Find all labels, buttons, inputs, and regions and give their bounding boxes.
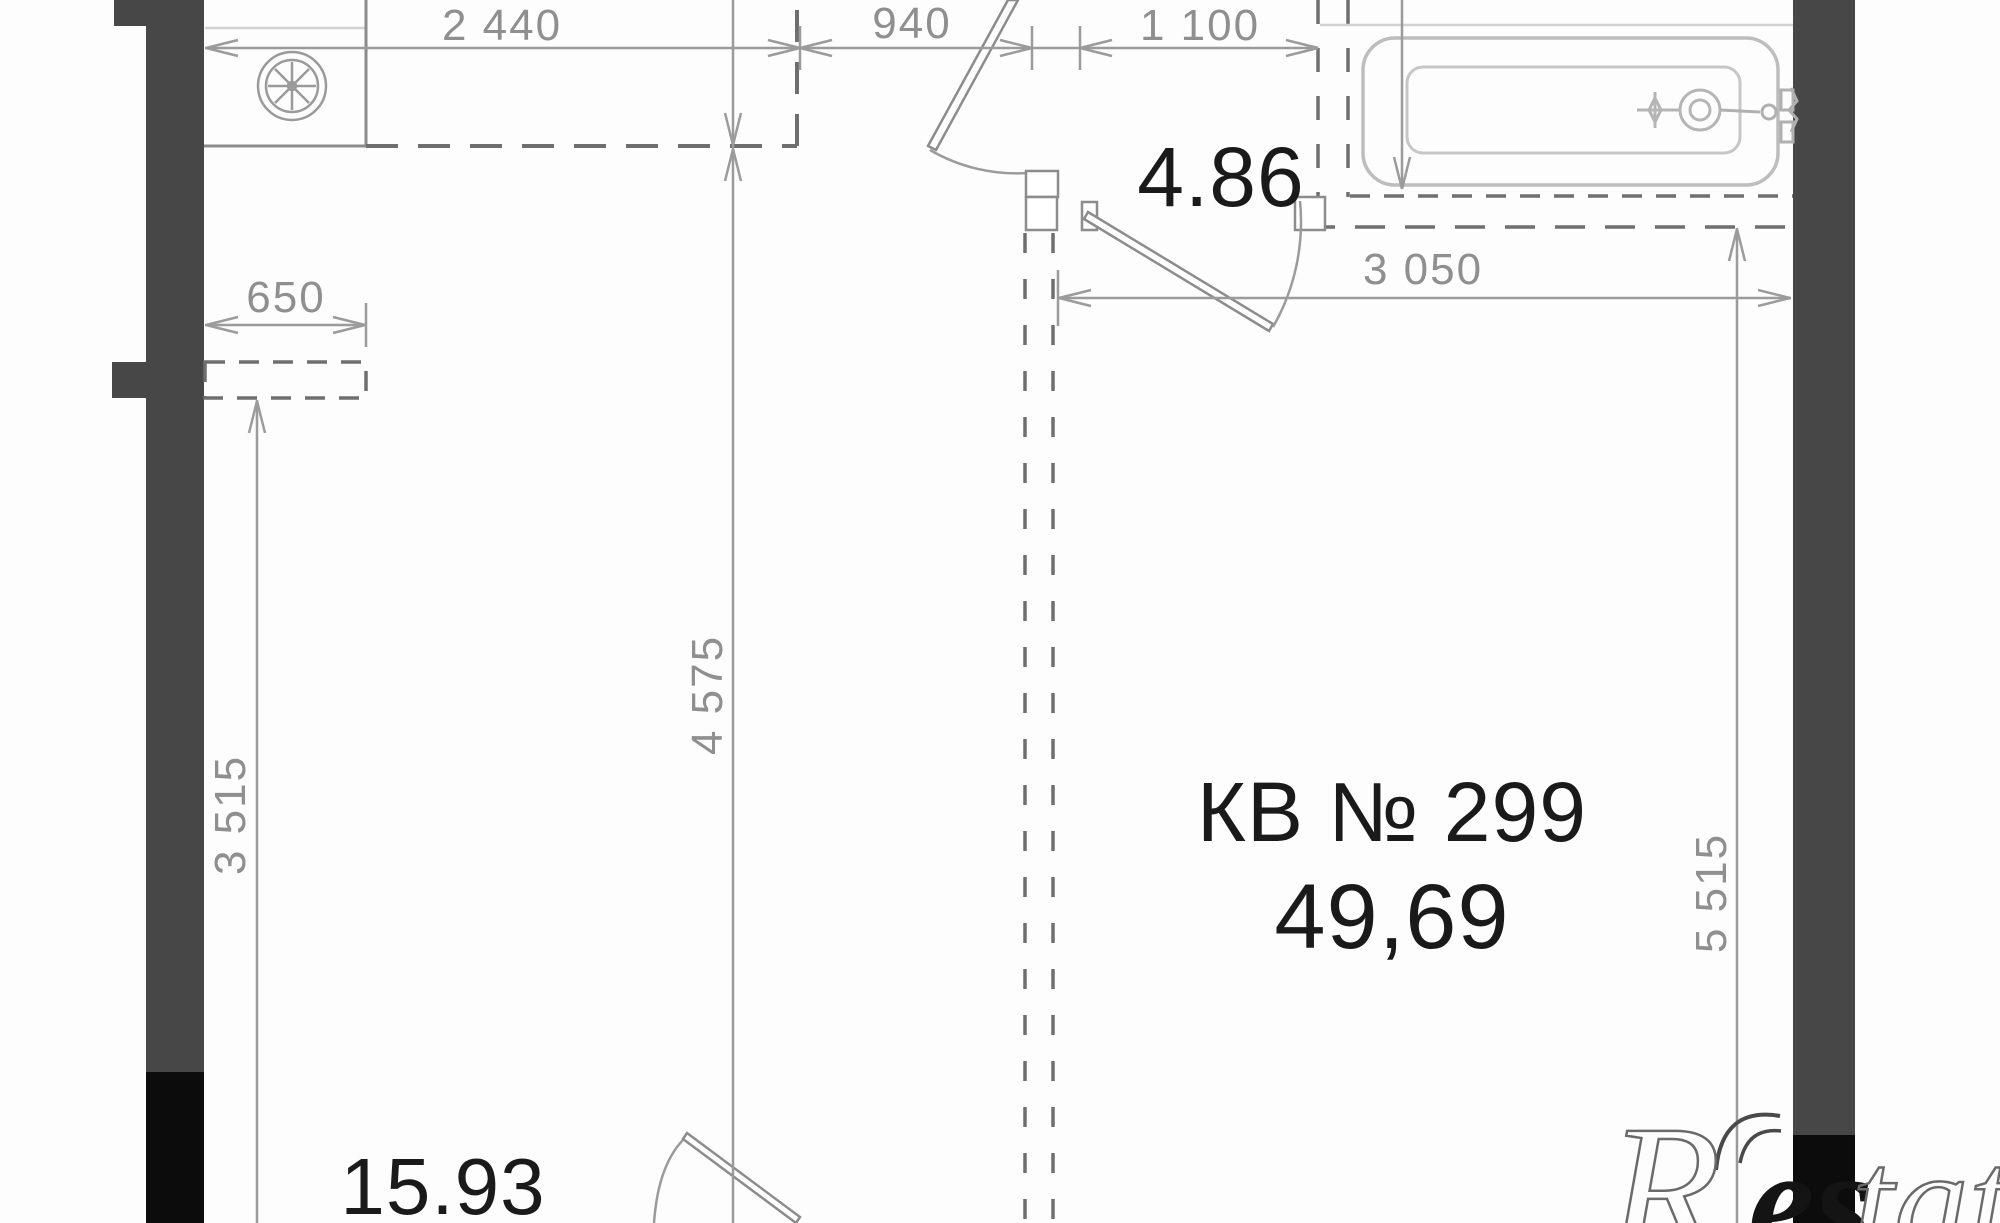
dim-label-5515: 5 515 bbox=[1687, 833, 1736, 953]
dim-label-650: 650 bbox=[246, 273, 325, 322]
bath-faucet-icon bbox=[1720, 88, 1797, 142]
watermark-text-tate: tate bbox=[1852, 1119, 2000, 1223]
dim-label-1100: 1 100 bbox=[1140, 1, 1260, 50]
balcony-door bbox=[654, 1133, 800, 1223]
wall-stub-mid-left bbox=[112, 362, 148, 398]
dim-3515: 3 515 bbox=[206, 400, 265, 1223]
duct-dashed-box bbox=[205, 362, 366, 398]
dim-650: 650 bbox=[205, 273, 366, 347]
wall-right-upper bbox=[1793, 0, 1855, 1135]
wall-left bbox=[112, 0, 204, 1223]
floor-plan-svg: 2 440 940 1 100 650 3 515 4 575 3 050 5 … bbox=[0, 0, 2000, 1223]
room-area-label-living: 15.93 bbox=[340, 1142, 545, 1223]
dim-label-940: 940 bbox=[872, 0, 951, 48]
dim-4575: 4 575 bbox=[683, 0, 741, 1223]
unit-number-label: КВ № 299 bbox=[1197, 765, 1587, 859]
wall-left-lower bbox=[146, 1072, 204, 1223]
wall-stub-top-left bbox=[114, 0, 148, 26]
room-area-label-bathroom: 4.86 bbox=[1137, 130, 1305, 224]
dim-3050: 3 050 bbox=[1058, 245, 1791, 326]
dim-5515: 5 515 bbox=[1687, 228, 1745, 1223]
balcony-door-swing-arc bbox=[654, 1140, 683, 1223]
wall-right bbox=[1793, 0, 1855, 1223]
balcony-door-leaf bbox=[683, 1133, 800, 1223]
wall-left-upper bbox=[146, 0, 204, 1072]
dim-label-2440: 2 440 bbox=[442, 1, 562, 50]
bathtub-drain-icon bbox=[1680, 90, 1720, 130]
bathtub-outer-rim bbox=[1363, 38, 1778, 185]
unit-area-label: 49,69 bbox=[1274, 866, 1509, 968]
dim-top-chain: 2 440 940 1 100 bbox=[205, 0, 1318, 70]
bathtub bbox=[1363, 38, 1797, 185]
entrance-door-swing-arc bbox=[930, 150, 1028, 173]
door-jamb-left-bottom bbox=[1026, 197, 1057, 230]
dim-label-3050: 3 050 bbox=[1363, 245, 1483, 294]
watermark-text-r: R bbox=[1607, 1088, 1721, 1223]
ventilation-fan-icon bbox=[258, 52, 326, 120]
floor-plan-screenshot: 2 440 940 1 100 650 3 515 4 575 3 050 5 … bbox=[0, 0, 2000, 1223]
door-jamb-left-top bbox=[1026, 171, 1058, 197]
future-partition-dashed bbox=[1025, 233, 1053, 1223]
room-door-leaf bbox=[1084, 212, 1273, 331]
dim-label-3515: 3 515 bbox=[206, 755, 255, 875]
kitchen-counter bbox=[204, 0, 366, 146]
dim-label-4575: 4 575 bbox=[683, 635, 732, 755]
bathtub-overflow-icon bbox=[1637, 92, 1680, 128]
